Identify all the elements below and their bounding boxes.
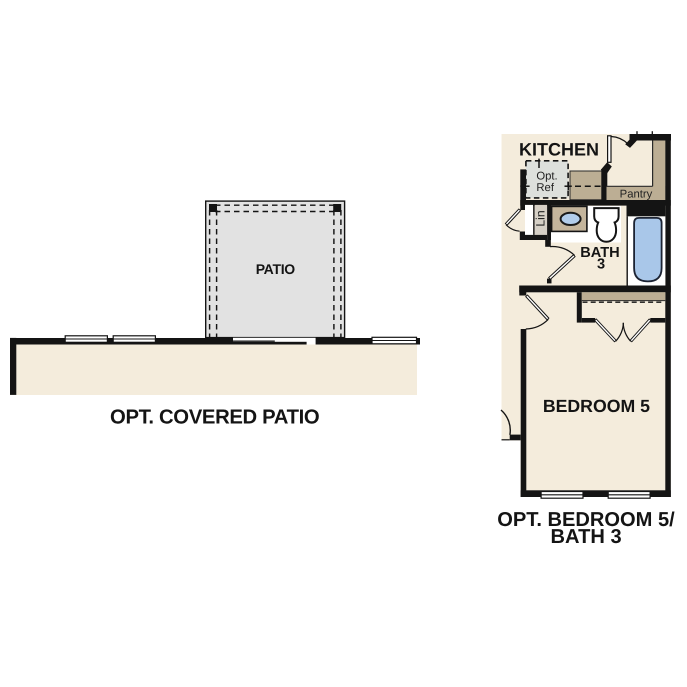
svg-text:BEDROOM 5: BEDROOM 5 (543, 396, 650, 416)
svg-text:OPT. COVERED PATIO: OPT. COVERED PATIO (110, 406, 319, 428)
svg-text:KITCHEN: KITCHEN (519, 139, 599, 159)
svg-text:Pantry: Pantry (620, 189, 653, 201)
svg-text:3: 3 (597, 257, 605, 273)
svg-text:Lin: Lin (533, 210, 547, 226)
svg-text:BATH 3: BATH 3 (551, 526, 622, 548)
svg-text:PATIO: PATIO (256, 261, 296, 277)
svg-text:Opt.: Opt. (536, 170, 557, 182)
svg-text:Ref: Ref (536, 182, 554, 194)
